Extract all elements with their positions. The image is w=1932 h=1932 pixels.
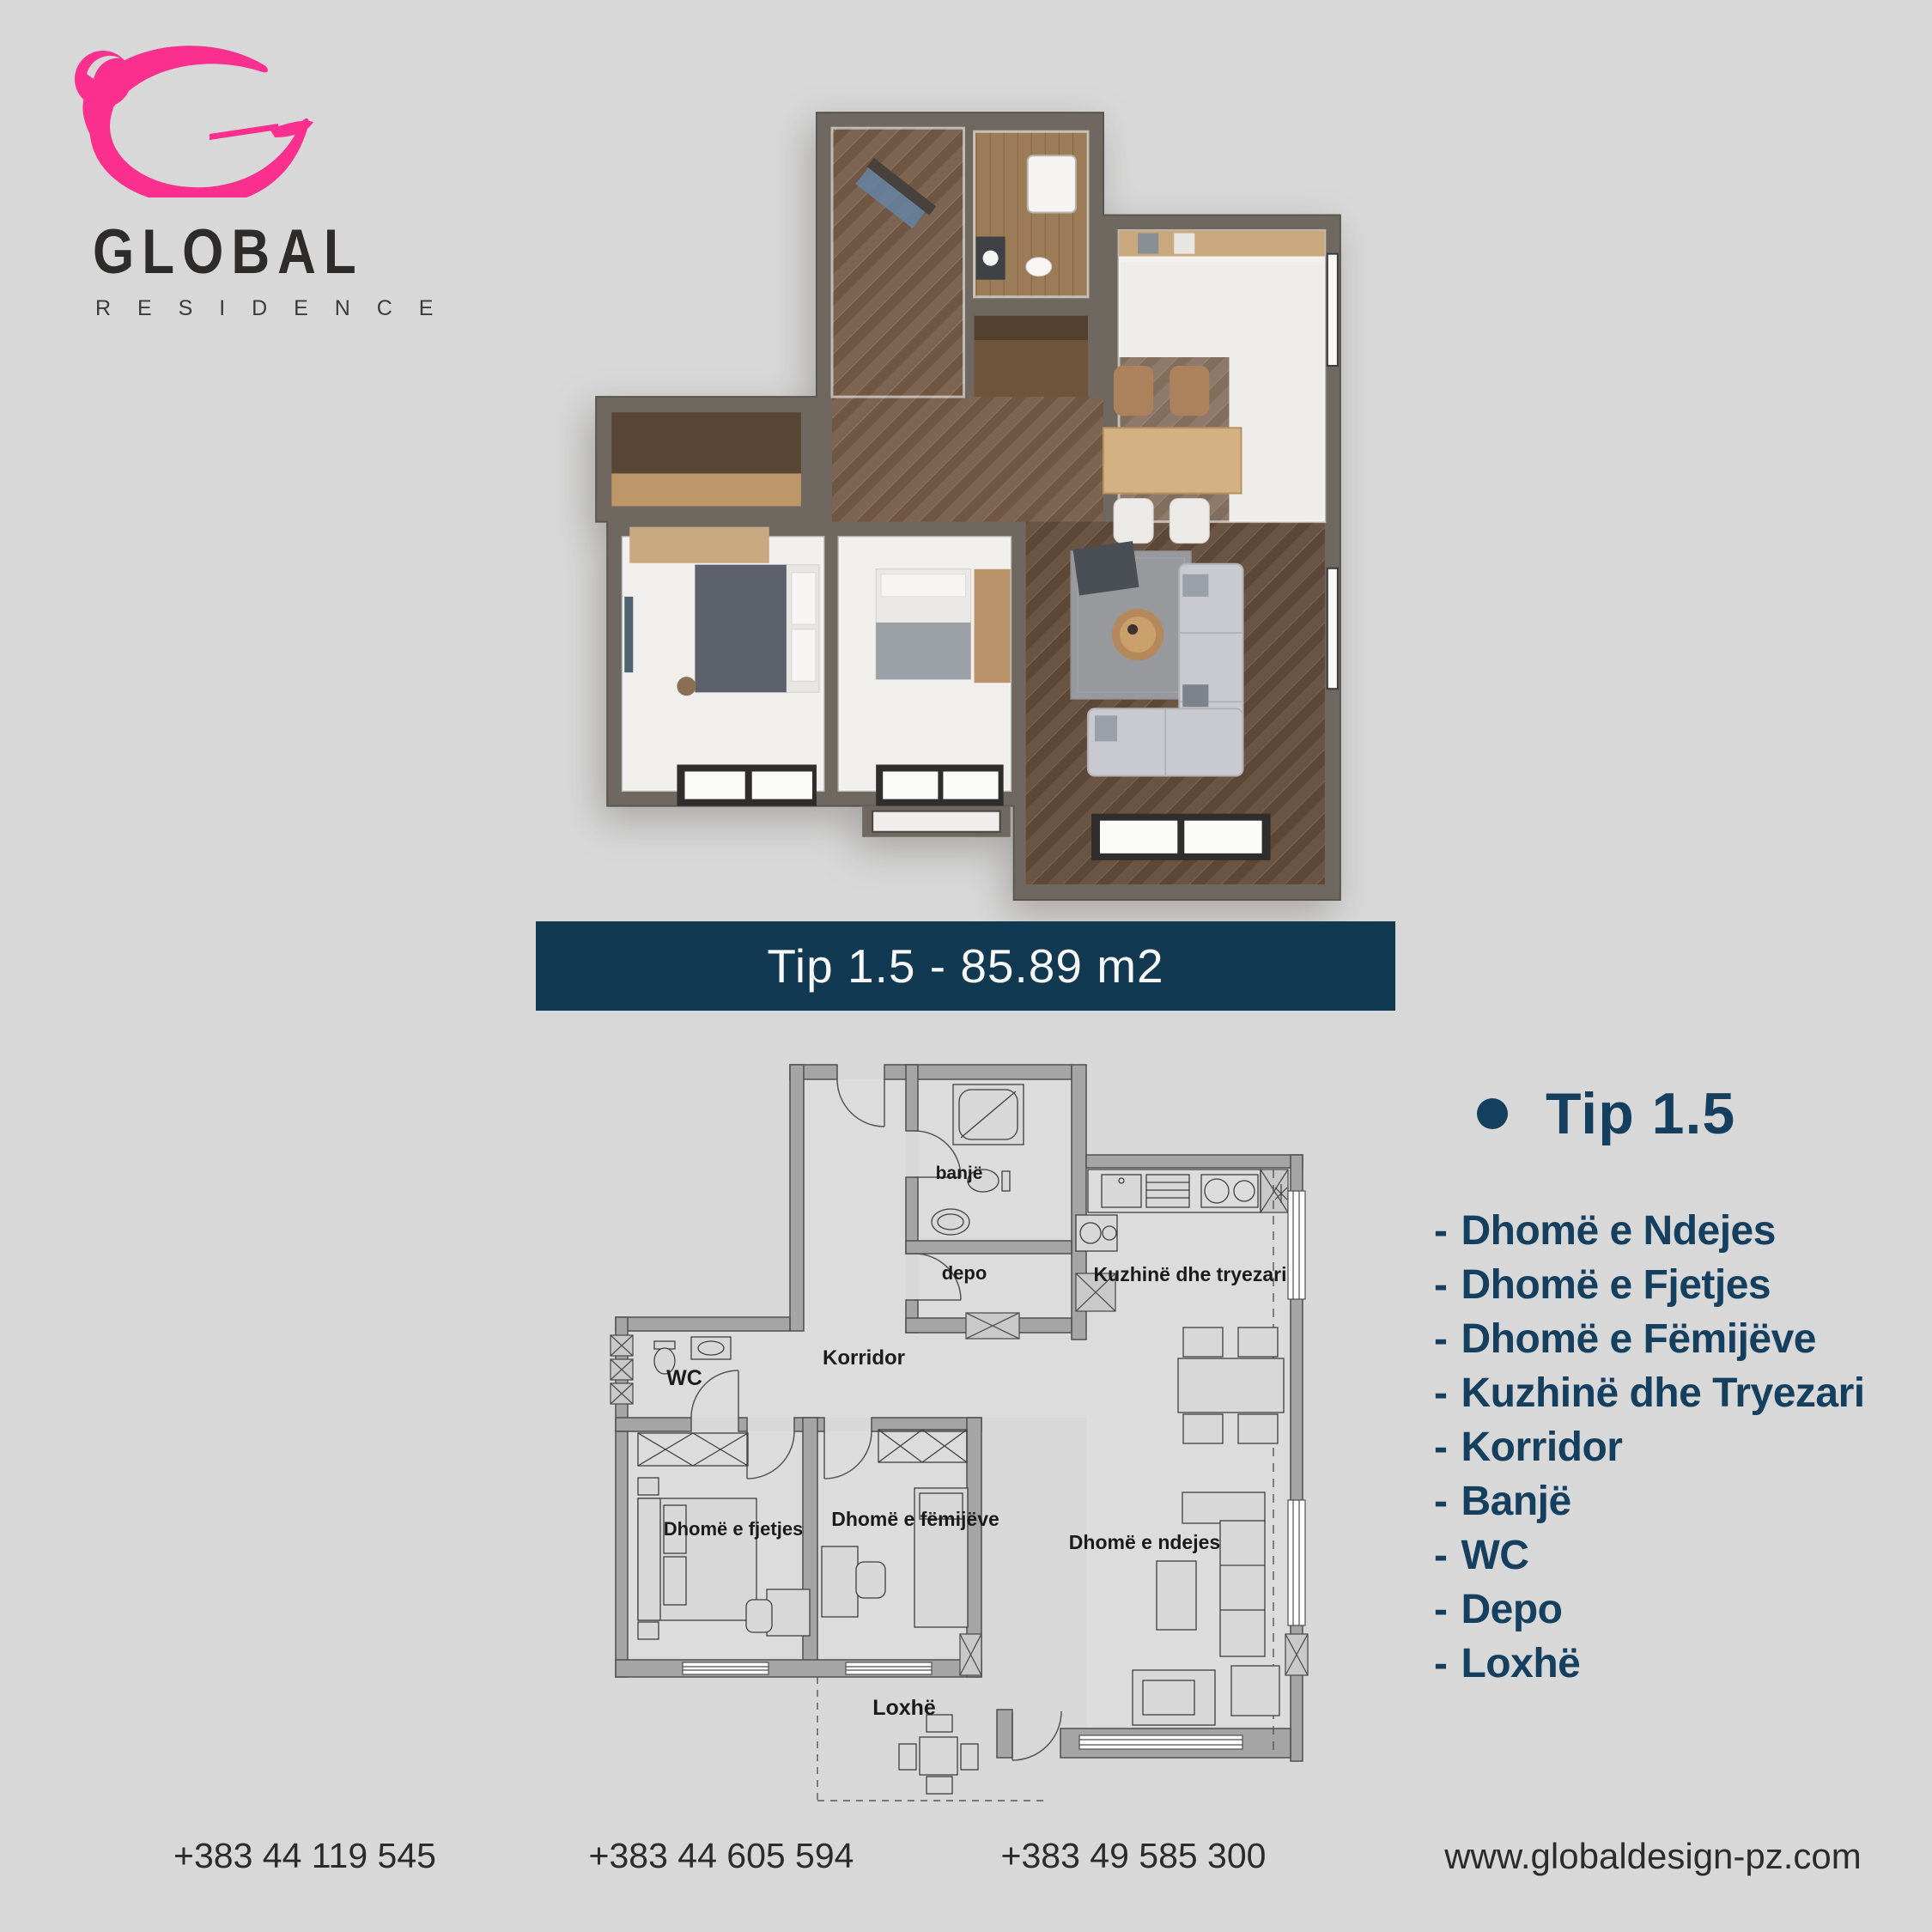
floorplan-3d-render (534, 82, 1397, 904)
brand-subtitle: R E S I D E N C E (95, 296, 443, 321)
room-list-item: -Banjë (1434, 1474, 1929, 1528)
bullet-icon (1477, 1098, 1508, 1129)
floorplan-2d-drawing: banjë depo Kuzhinë dhe tryezari WC Korri… (562, 1035, 1387, 1807)
label-wc: WC (666, 1366, 702, 1390)
room-list-item: -Dhomë e Ndejes (1434, 1204, 1929, 1258)
footer-contacts: +383 44 119 545 +383 44 605 594 +383 49 … (0, 1836, 1932, 1887)
website-url: www.globaldesign-pz.com (1444, 1836, 1862, 1877)
label-loxhe: Loxhë (872, 1696, 936, 1720)
label-ndejes: Dhomë e ndejes (1069, 1531, 1220, 1553)
globe-g-icon (58, 26, 316, 197)
room-list-item: -Loxhë (1434, 1637, 1929, 1691)
phone-number-2: +383 44 605 594 (589, 1836, 854, 1876)
label-femijeve: Dhomë e fëmijëve (831, 1508, 999, 1530)
unit-header: Tip 1.5 (1477, 1080, 1929, 1147)
phone-number-3: +383 49 585 300 (1001, 1836, 1267, 1876)
unit-title: Tip 1.5 (1546, 1080, 1735, 1147)
label-fjetjes: Dhomë e fjetjes (664, 1518, 804, 1540)
unit-info-panel: Tip 1.5 -Dhomë e Ndejes -Dhomë e Fjetjes… (1427, 1080, 1929, 1691)
brand-name: GLOBAL (93, 216, 364, 289)
room-list-item: -Depo (1434, 1583, 1929, 1637)
room-list-item: -WC (1434, 1528, 1929, 1583)
room-list-item: -Dhomë e Fëmijëve (1434, 1312, 1929, 1366)
phone-number-1: +383 44 119 545 (173, 1836, 436, 1876)
room-list-item: -Korridor (1434, 1420, 1929, 1474)
room-list-item: -Dhomë e Fjetjes (1434, 1258, 1929, 1312)
type-banner-label: Tip 1.5 - 85.89 m2 (767, 939, 1163, 993)
room-list-item: -Kuzhinë dhe Tryezari (1434, 1366, 1929, 1420)
label-depo: depo (942, 1262, 987, 1284)
brand-logo: GLOBAL R E S I D E N C E (58, 26, 368, 335)
label-korridor: Korridor (823, 1346, 905, 1370)
type-banner: Tip 1.5 - 85.89 m2 (536, 921, 1395, 1011)
room-list: -Dhomë e Ndejes -Dhomë e Fjetjes -Dhomë … (1434, 1204, 1929, 1691)
label-kuzhine: Kuzhinë dhe tryezari (1094, 1263, 1287, 1285)
poster-canvas: GLOBAL R E S I D E N C E (0, 0, 1932, 1932)
balcony-tab-3d (862, 806, 1011, 837)
label-banje: banjë (936, 1163, 983, 1183)
